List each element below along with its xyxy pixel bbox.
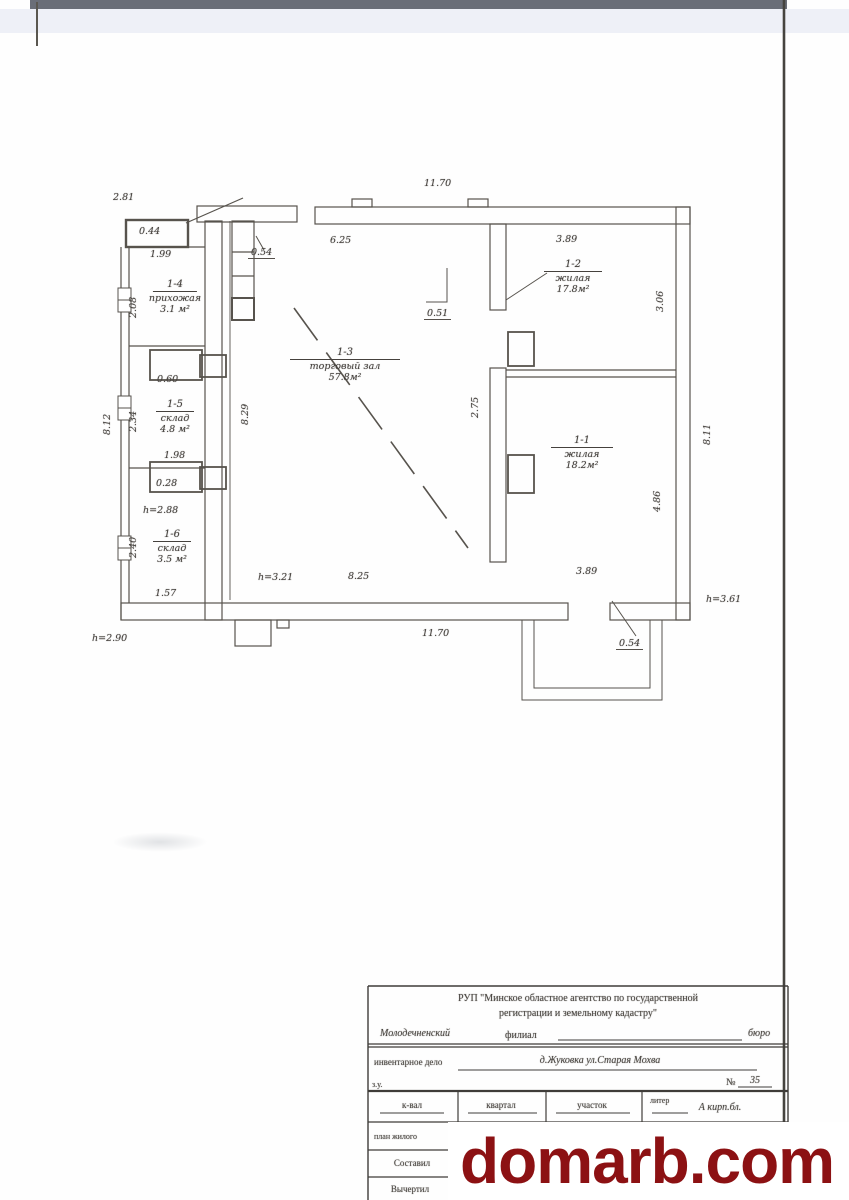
room-label-1-4: 1-4прихожая3.1 м² — [149, 272, 201, 315]
dimension-label: h=2.88 — [143, 505, 178, 516]
dimension-label: 11.70 — [424, 178, 451, 189]
dimension-label: 2.75 — [470, 397, 481, 418]
dimension-label: 3.89 — [576, 566, 597, 577]
agency-name-line2: регистрации и земельному кадастру" — [499, 1008, 657, 1019]
column-header-uchastok: участок — [577, 1100, 607, 1110]
number-value: 35 — [750, 1075, 760, 1086]
room-label-1-1: 1-1жилая18.2м² — [551, 428, 613, 471]
dimension-label: h=3.61 — [706, 594, 741, 605]
room-label-1-5: 1-5склад4.8 м² — [156, 392, 194, 435]
dimension-label: 0.54 — [248, 247, 275, 259]
dimension-label: 3.06 — [655, 291, 666, 312]
column-header-kvartal-short: к-вал — [402, 1100, 422, 1110]
liter-value: А кирп.бл. — [699, 1102, 741, 1113]
dimension-label: 8.29 — [240, 404, 251, 425]
room-label-1-2: 1-2жилая17.8м² — [544, 252, 602, 295]
dimension-label: 8.25 — [348, 571, 369, 582]
dimension-label: 3.89 — [556, 234, 577, 245]
branch-word-filial: филиал — [505, 1030, 537, 1041]
scanned-floor-plan-page: 2.810.441.990.546.2511.703.893.060.512.7… — [0, 0, 849, 1200]
row-label-sostavil: Составил — [394, 1158, 430, 1168]
dimension-label: 8.12 — [102, 414, 113, 435]
dimension-label: 0.51 — [424, 308, 451, 320]
dimension-label: 1.99 — [150, 249, 171, 260]
watermark-text: domarb.com — [460, 1129, 834, 1193]
watermark-background: domarb.com — [448, 1122, 849, 1200]
dimension-label: 4.86 — [652, 491, 663, 512]
branch-word-buro: бюро — [748, 1028, 770, 1039]
row-label-plan: план жилого — [374, 1132, 417, 1141]
room-label-1-3: 1-3торговый зал57.8м² — [290, 340, 400, 383]
dimension-label: 2.08 — [128, 297, 139, 318]
scan-smudge — [112, 832, 208, 852]
dimension-label: 2.34 — [128, 411, 139, 432]
dimension-label: h=2.90 — [92, 633, 127, 644]
column-header-kvartal: квартал — [486, 1100, 516, 1110]
dimension-label: 6.25 — [330, 235, 351, 246]
walls-group — [121, 198, 690, 646]
zu-label: з.у. — [372, 1080, 382, 1089]
dimension-label: 2.81 — [113, 192, 134, 203]
address-value: д.Жуковка ул.Старая Мохва — [540, 1055, 660, 1066]
agency-name-line1: РУП "Минское областное агентство по госу… — [458, 993, 698, 1004]
dimension-label: 11.70 — [422, 628, 449, 639]
dimension-label: h=3.21 — [258, 572, 293, 583]
dimension-label: 8.11 — [702, 424, 713, 445]
dimension-label: 1.98 — [164, 450, 185, 461]
dimension-label: 0.28 — [156, 478, 177, 489]
porch-group — [522, 620, 662, 700]
dimension-label: 1.57 — [155, 588, 176, 599]
dimension-label: 2.40 — [128, 537, 139, 558]
dimension-label: 0.54 — [616, 638, 643, 650]
row-label-vychertil: Вычертил — [391, 1184, 429, 1194]
room-label-1-6: 1-6склад3.5 м² — [153, 522, 191, 565]
inventory-file-label: инвентарное дело — [374, 1057, 442, 1067]
dimension-label: 0.44 — [139, 226, 160, 237]
branch-name: Молодечненский — [380, 1028, 450, 1039]
number-label: № — [726, 1077, 736, 1088]
column-header-liter: литер — [650, 1096, 669, 1105]
dimension-label: 0.60 — [157, 374, 178, 385]
